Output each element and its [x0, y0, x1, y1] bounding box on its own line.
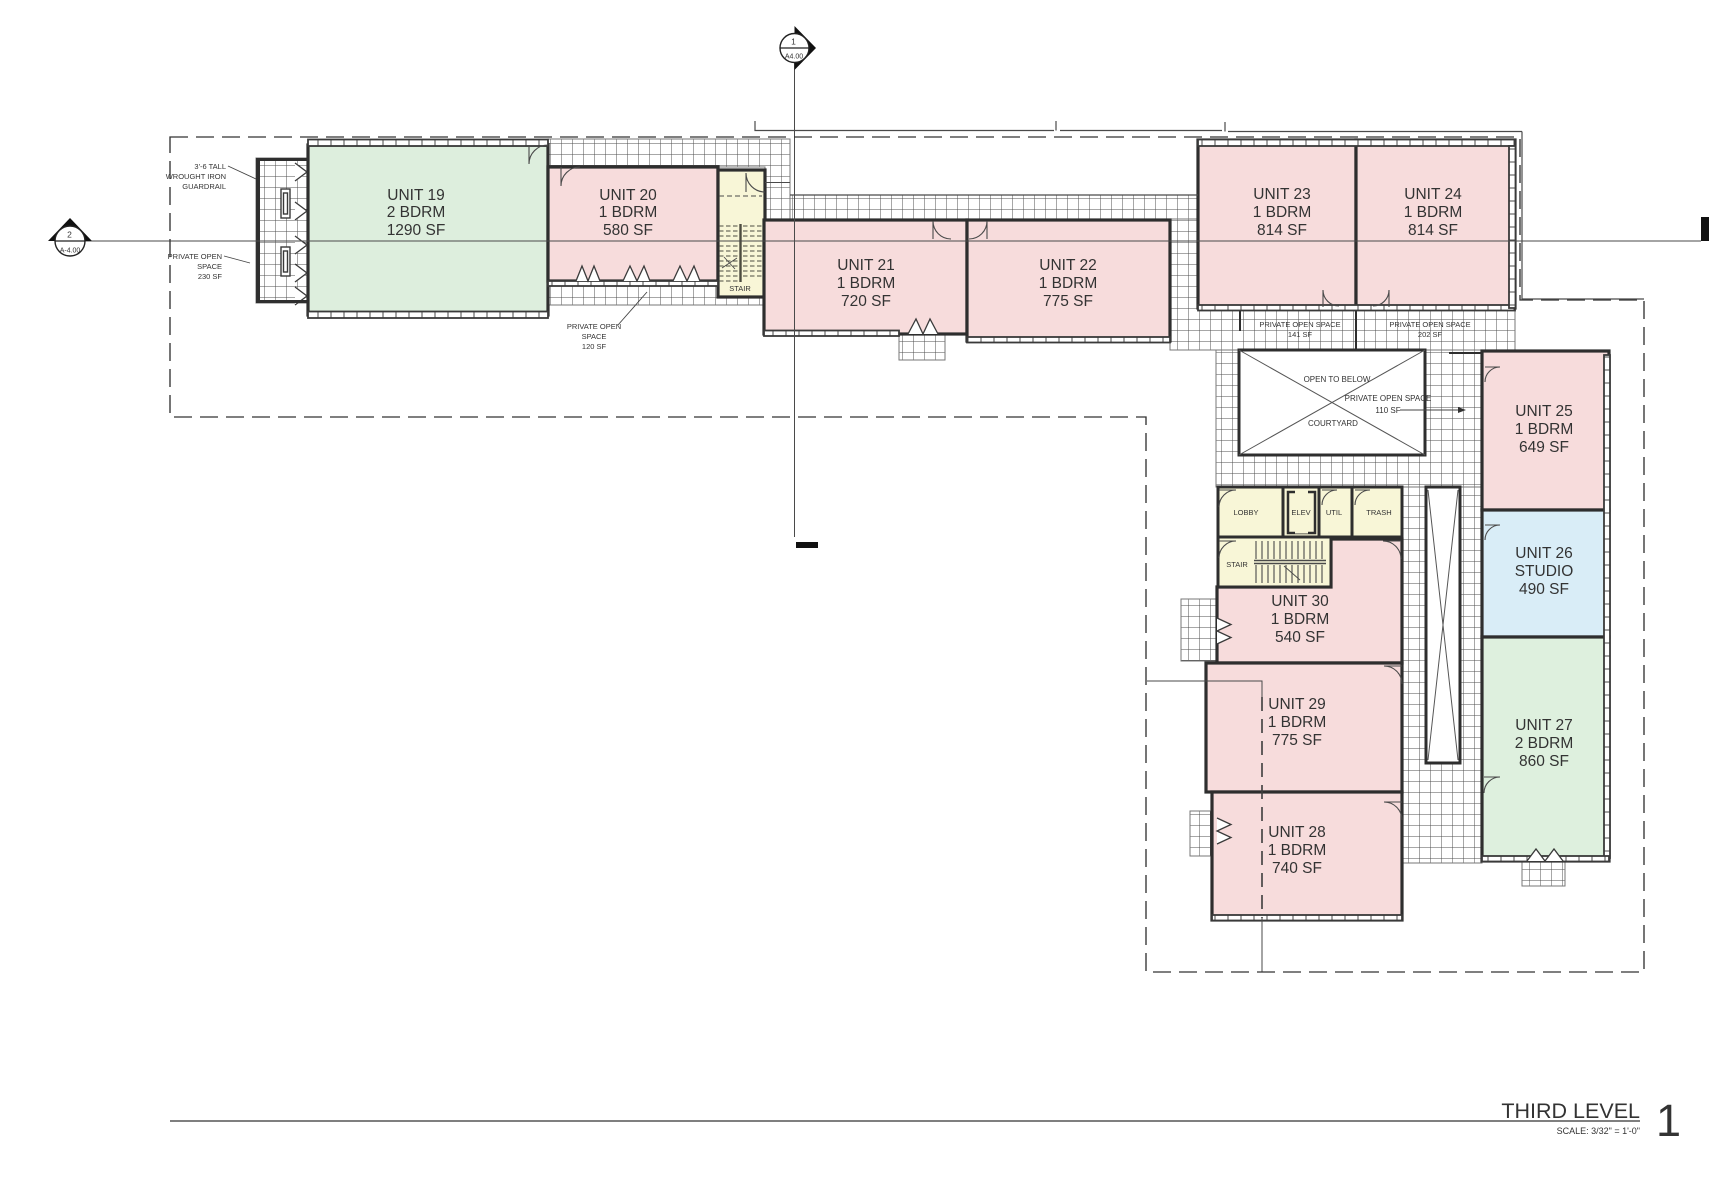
- svg-text:ELEV: ELEV: [1291, 508, 1310, 517]
- svg-text:WROUGHT IRON: WROUGHT IRON: [166, 172, 226, 181]
- svg-text:UNIT 20: UNIT 20: [599, 187, 657, 204]
- svg-text:SPACE: SPACE: [197, 262, 222, 271]
- svg-text:1 BDRM: 1 BDRM: [1268, 842, 1327, 859]
- svg-text:1: 1: [791, 37, 796, 47]
- svg-text:141 SF: 141 SF: [1288, 330, 1313, 339]
- svg-text:490 SF: 490 SF: [1519, 581, 1569, 598]
- svg-text:PRIVATE OPEN SPACE: PRIVATE OPEN SPACE: [1389, 320, 1470, 329]
- svg-text:1 BDRM: 1 BDRM: [1039, 275, 1098, 292]
- svg-text:UNIT 25: UNIT 25: [1515, 403, 1572, 420]
- svg-text:UNIT 24: UNIT 24: [1404, 186, 1462, 203]
- svg-text:UNIT 26: UNIT 26: [1515, 545, 1572, 562]
- svg-text:PRIVATE OPEN: PRIVATE OPEN: [168, 252, 222, 261]
- svg-text:UTIL: UTIL: [1326, 508, 1342, 517]
- svg-text:1 BDRM: 1 BDRM: [1404, 204, 1463, 221]
- svg-text:814 SF: 814 SF: [1257, 222, 1307, 239]
- svg-text:720 SF: 720 SF: [841, 293, 891, 310]
- svg-text:110 SF: 110 SF: [1375, 406, 1400, 415]
- svg-text:1: 1: [1656, 1095, 1681, 1146]
- svg-text:1 BDRM: 1 BDRM: [1515, 421, 1574, 438]
- svg-text:UNIT 27: UNIT 27: [1515, 717, 1572, 734]
- svg-text:2 BDRM: 2 BDRM: [387, 204, 446, 221]
- svg-text:PRIVATE OPEN SPACE: PRIVATE OPEN SPACE: [1259, 320, 1340, 329]
- svg-text:STUDIO: STUDIO: [1515, 563, 1574, 580]
- svg-text:1 BDRM: 1 BDRM: [599, 204, 658, 221]
- svg-text:UNIT 29: UNIT 29: [1268, 696, 1325, 713]
- svg-text:A-4.00: A-4.00: [60, 248, 81, 255]
- svg-text:775 SF: 775 SF: [1272, 732, 1322, 749]
- svg-text:SCALE: 3/32" = 1'-0": SCALE: 3/32" = 1'-0": [1557, 1126, 1640, 1136]
- svg-text:1 BDRM: 1 BDRM: [837, 275, 896, 292]
- svg-text:740 SF: 740 SF: [1272, 860, 1322, 877]
- svg-text:OPEN TO BELOW: OPEN TO BELOW: [1304, 375, 1371, 384]
- svg-text:UNIT 28: UNIT 28: [1268, 824, 1325, 841]
- svg-text:775 SF: 775 SF: [1043, 293, 1093, 310]
- svg-text:UNIT 23: UNIT 23: [1253, 186, 1310, 203]
- svg-text:TRASH: TRASH: [1366, 508, 1391, 517]
- svg-text:649 SF: 649 SF: [1519, 439, 1569, 456]
- svg-text:THIRD LEVEL: THIRD LEVEL: [1501, 1099, 1640, 1123]
- svg-text:1 BDRM: 1 BDRM: [1271, 611, 1330, 628]
- svg-text:580 SF: 580 SF: [603, 222, 653, 239]
- svg-text:STAIR: STAIR: [729, 284, 751, 293]
- svg-text:COURTYARD: COURTYARD: [1308, 419, 1358, 428]
- svg-text:UNIT 21: UNIT 21: [837, 257, 894, 274]
- svg-text:202 SF: 202 SF: [1418, 330, 1443, 339]
- svg-text:540 SF: 540 SF: [1275, 629, 1325, 646]
- svg-text:LOBBY: LOBBY: [1233, 508, 1258, 517]
- svg-text:2 BDRM: 2 BDRM: [1515, 735, 1574, 752]
- svg-text:UNIT 22: UNIT 22: [1039, 257, 1096, 274]
- svg-text:120 SF: 120 SF: [582, 342, 607, 351]
- svg-text:814 SF: 814 SF: [1408, 222, 1458, 239]
- svg-text:1 BDRM: 1 BDRM: [1253, 204, 1312, 221]
- svg-text:3'-6 TALL: 3'-6 TALL: [194, 162, 226, 171]
- svg-text:1 BDRM: 1 BDRM: [1268, 714, 1327, 731]
- svg-text:A4.00: A4.00: [785, 54, 803, 61]
- svg-text:1290 SF: 1290 SF: [387, 222, 446, 239]
- svg-text:STAIR: STAIR: [1226, 560, 1248, 569]
- svg-text:PRIVATE OPEN: PRIVATE OPEN: [567, 322, 621, 331]
- svg-text:2: 2: [67, 230, 72, 240]
- svg-text:SPACE: SPACE: [582, 332, 607, 341]
- svg-text:860 SF: 860 SF: [1519, 753, 1569, 770]
- svg-text:UNIT 30: UNIT 30: [1271, 593, 1329, 610]
- svg-text:UNIT 19: UNIT 19: [387, 187, 444, 204]
- svg-text:PRIVATE OPEN SPACE: PRIVATE OPEN SPACE: [1345, 394, 1432, 403]
- svg-text:230 SF: 230 SF: [198, 272, 223, 281]
- svg-text:GUARDRAIL: GUARDRAIL: [182, 182, 226, 191]
